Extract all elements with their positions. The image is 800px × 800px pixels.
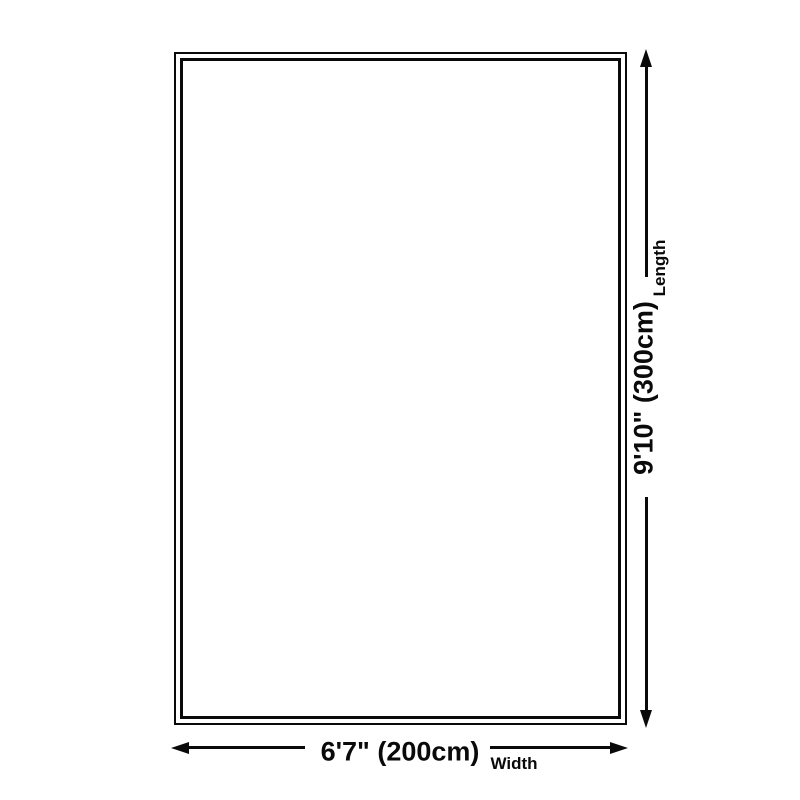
length-value: 9'10" (300cm) (629, 301, 660, 475)
length-dimension-line-bottom (645, 497, 648, 712)
rug-outline-inner (180, 58, 621, 719)
rug-size-diagram: Length 9'10" (300cm) 6'7" (200cm) Width (0, 0, 800, 800)
length-label: Length (650, 240, 670, 297)
width-value: 6'7" (200cm) (321, 737, 480, 768)
width-label: Width (490, 754, 537, 774)
rug-outline (174, 52, 627, 725)
arrow-right-icon (610, 742, 628, 754)
width-dimension-line-right (490, 746, 617, 749)
length-dimension-line-top (645, 65, 648, 277)
arrow-down-icon (640, 710, 652, 728)
width-dimension-line-left (187, 746, 305, 749)
